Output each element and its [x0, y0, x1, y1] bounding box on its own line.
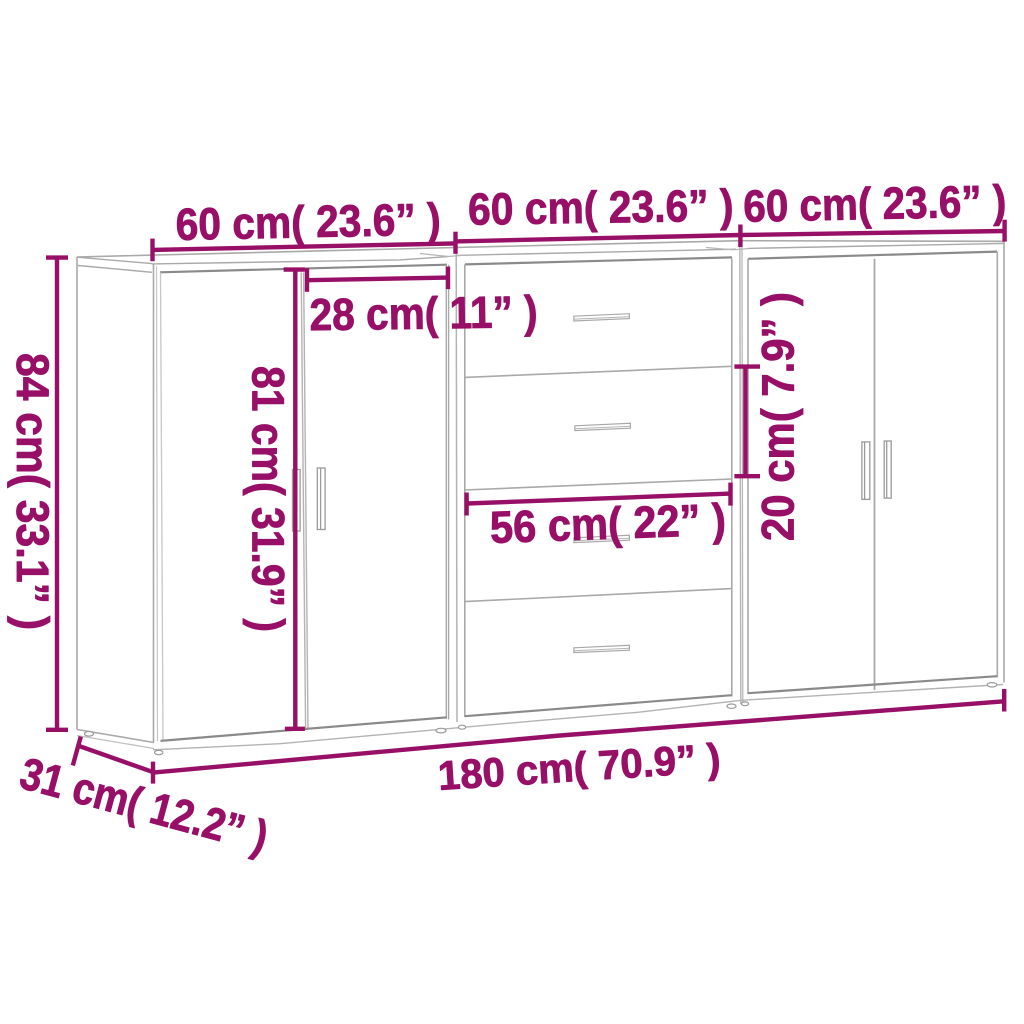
- svg-text:28 cm( 11” ): 28 cm( 11” ): [309, 286, 538, 340]
- svg-text:20 cm( 7.9” ): 20 cm( 7.9” ): [753, 292, 804, 541]
- svg-text:60 cm( 23.6” ): 60 cm( 23.6” ): [743, 175, 1007, 231]
- svg-text:60 cm( 23.6” ): 60 cm( 23.6” ): [468, 180, 734, 235]
- svg-text:56 cm( 22” ): 56 cm( 22” ): [489, 494, 727, 553]
- svg-text:81 cm( 31.9” ): 81 cm( 31.9” ): [243, 366, 294, 632]
- svg-text:84 cm( 33.1” ): 84 cm( 33.1” ): [7, 353, 58, 630]
- svg-text:60 cm( 23.6” ): 60 cm( 23.6” ): [175, 193, 441, 250]
